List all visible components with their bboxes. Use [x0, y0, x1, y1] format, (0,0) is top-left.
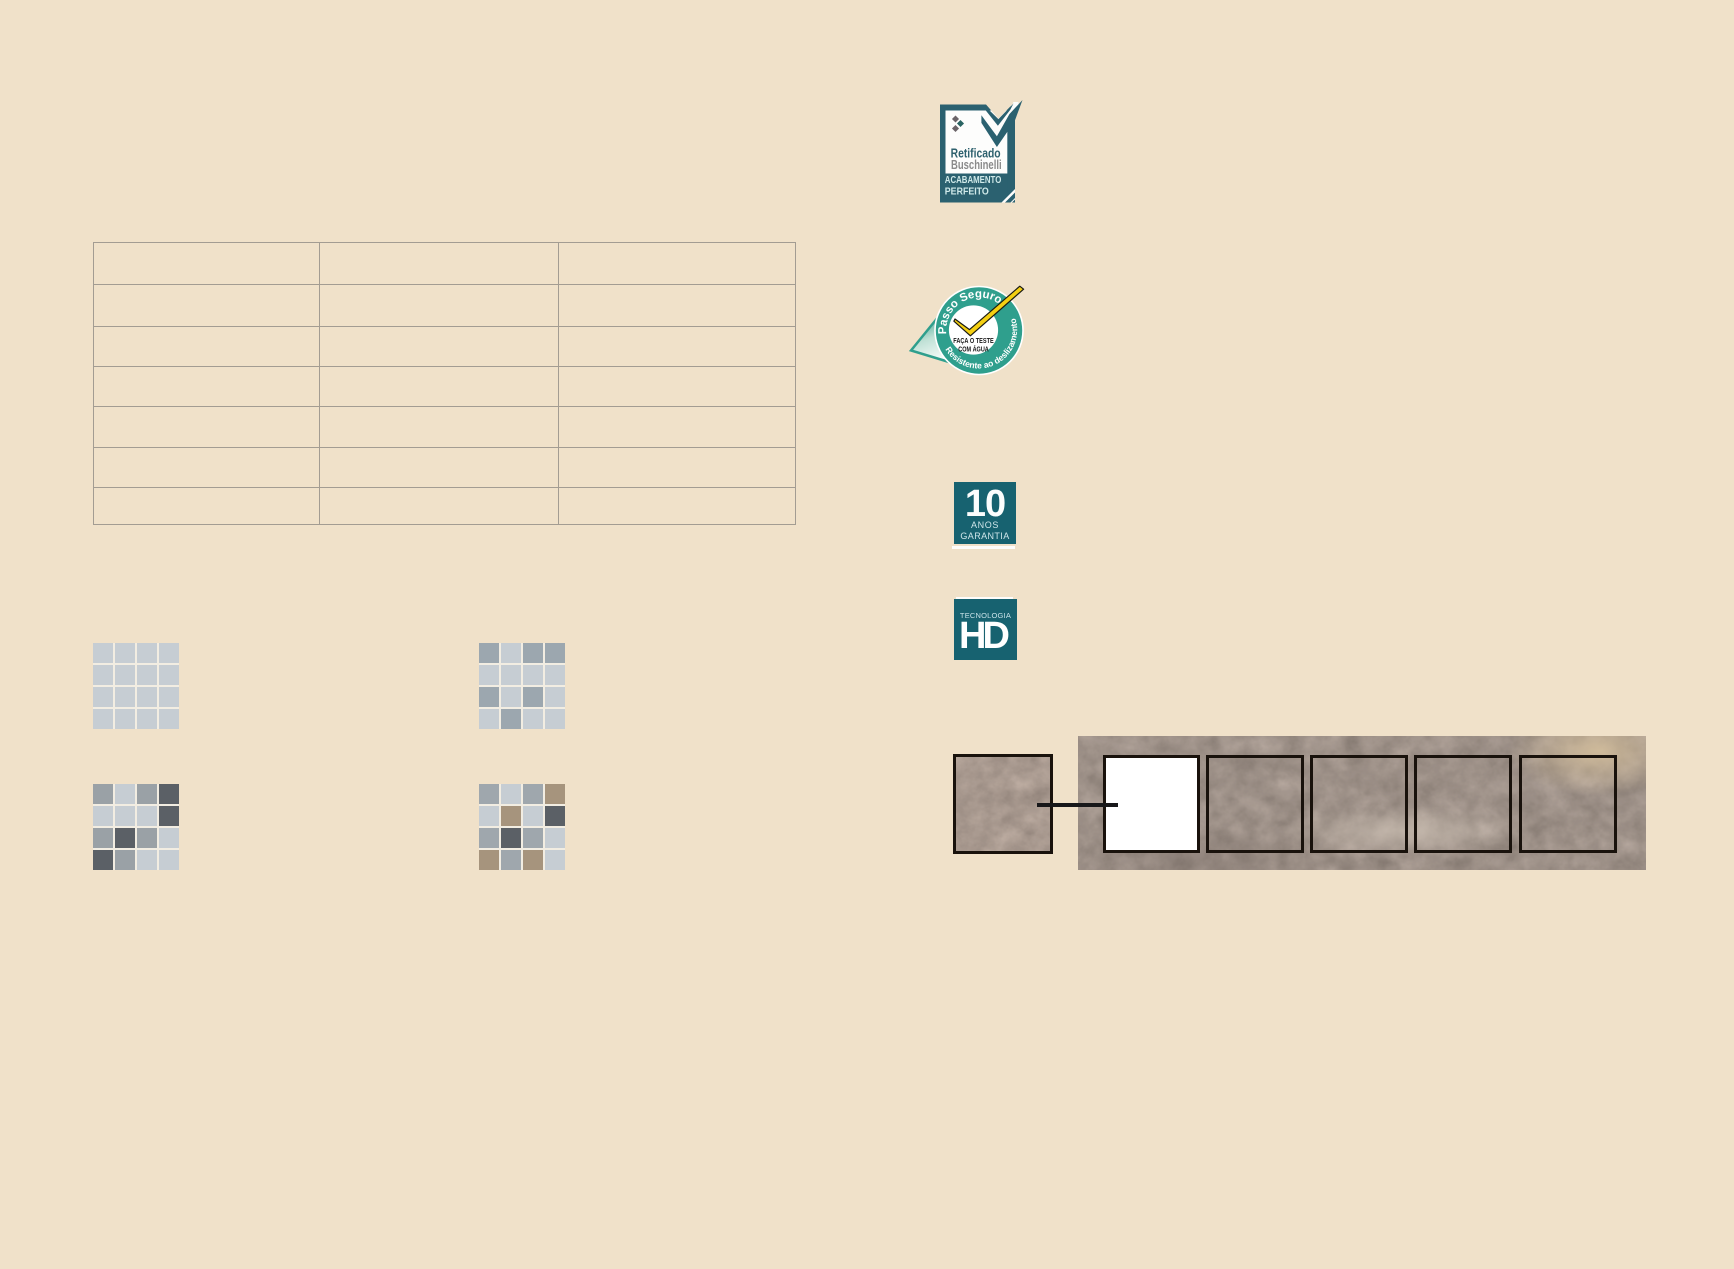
svg-text:ACABAMENTO: ACABAMENTO — [945, 174, 1002, 186]
svg-text:COM ÁGUA: COM ÁGUA — [958, 344, 989, 353]
svg-text:Buschinelli: Buschinelli — [951, 158, 1002, 172]
svg-text:PERFEITO: PERFEITO — [945, 186, 989, 198]
